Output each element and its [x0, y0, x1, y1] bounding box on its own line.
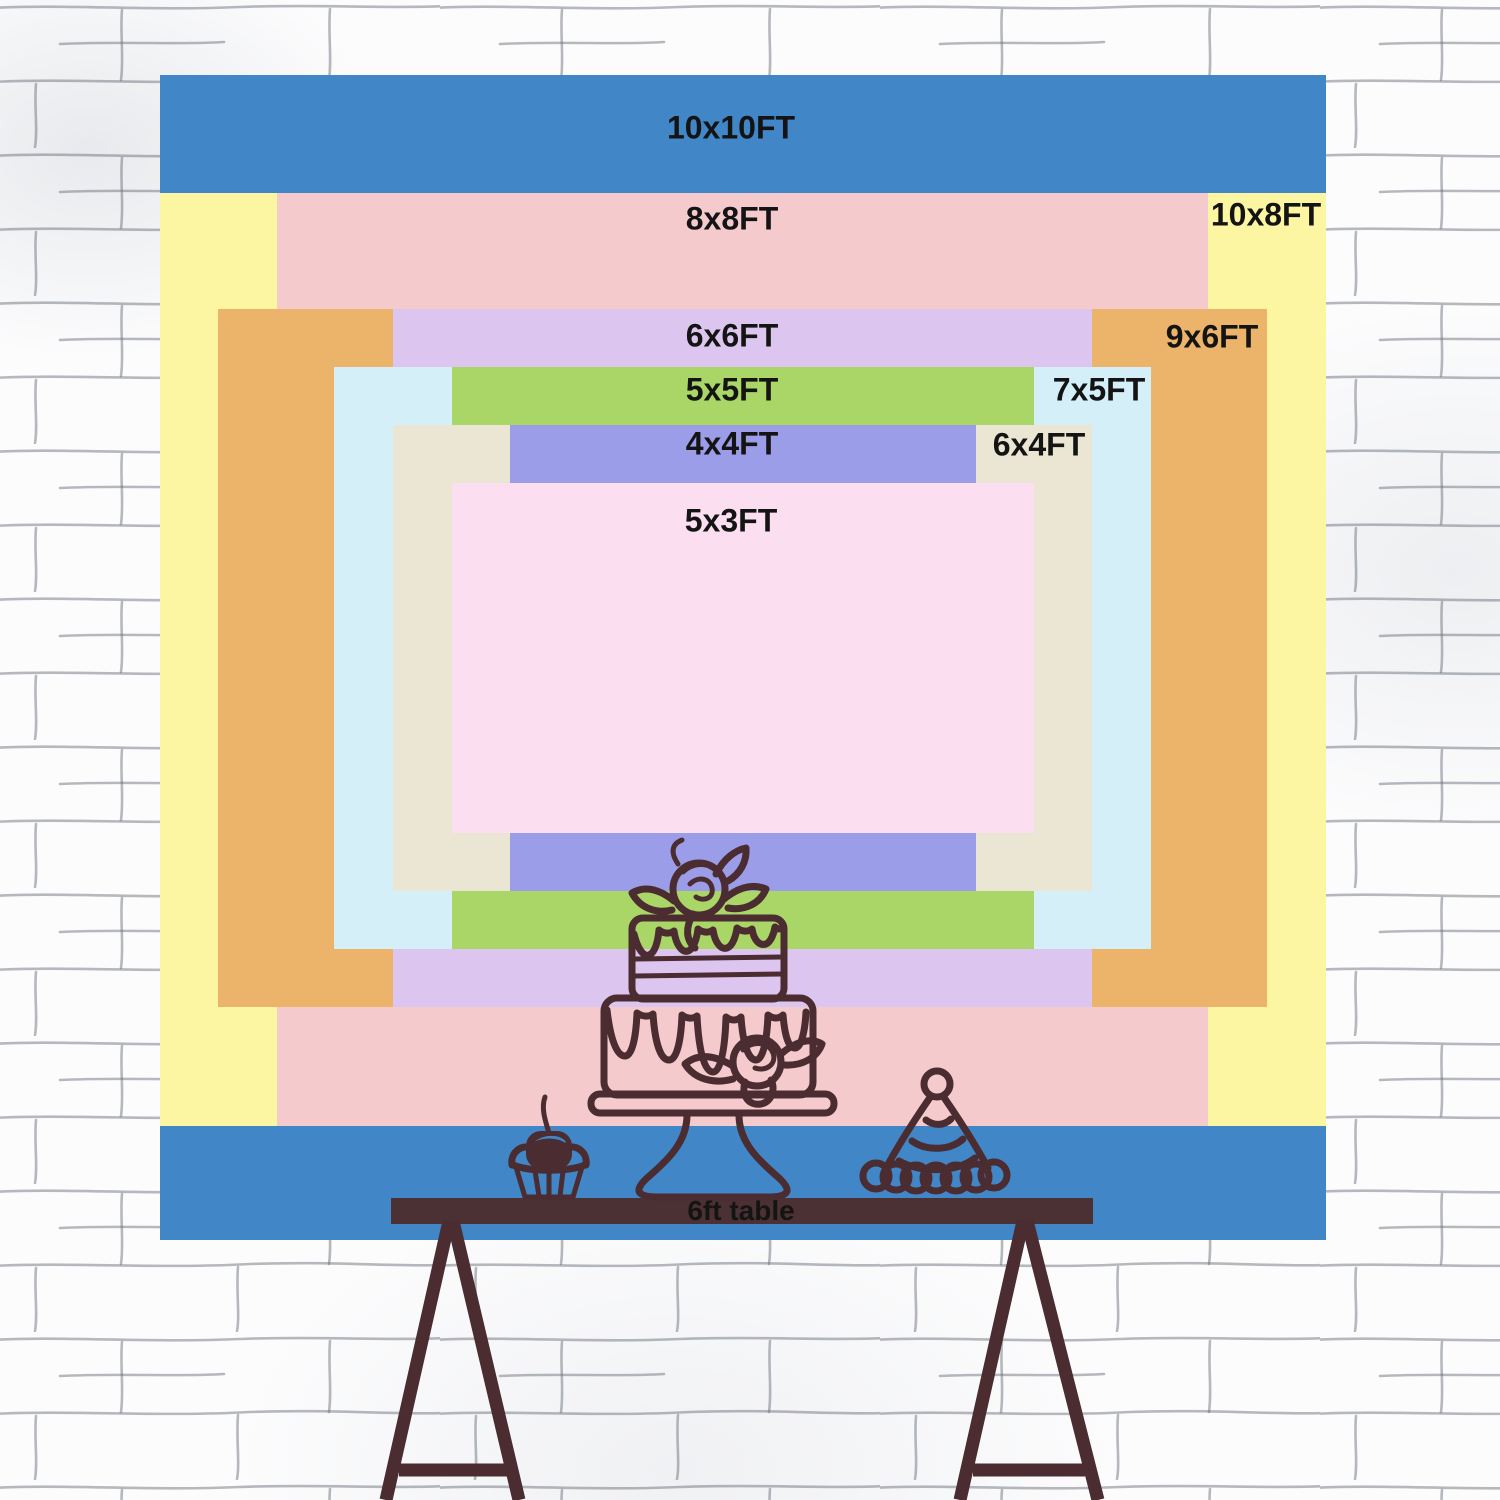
- size-label-5x3ft: 5x3FT: [685, 503, 777, 540]
- backdrop-stack: 10x10FT 8x8FT 10x8FT 6x6FT 9x6FT 5x5FT 7…: [0, 0, 1500, 1500]
- size-label-10x8ft: 10x8FT: [1211, 197, 1321, 234]
- size-label-10x10ft: 10x10FT: [667, 110, 795, 147]
- size-label-9x6ft: 9x6FT: [1166, 319, 1258, 356]
- table-label: 6ft table: [687, 1195, 794, 1227]
- backdrop-size-chart: 10x10FT 8x8FT 10x8FT 6x6FT 9x6FT 5x5FT 7…: [0, 0, 1500, 1500]
- size-label-5x5ft: 5x5FT: [686, 372, 778, 409]
- size-label-7x5ft: 7x5FT: [1053, 372, 1145, 409]
- size-label-4x4ft: 4x4FT: [686, 426, 778, 463]
- size-label-8x8ft: 8x8FT: [686, 201, 778, 238]
- size-label-6x4ft: 6x4FT: [993, 427, 1085, 464]
- size-label-6x6ft: 6x6FT: [686, 318, 778, 355]
